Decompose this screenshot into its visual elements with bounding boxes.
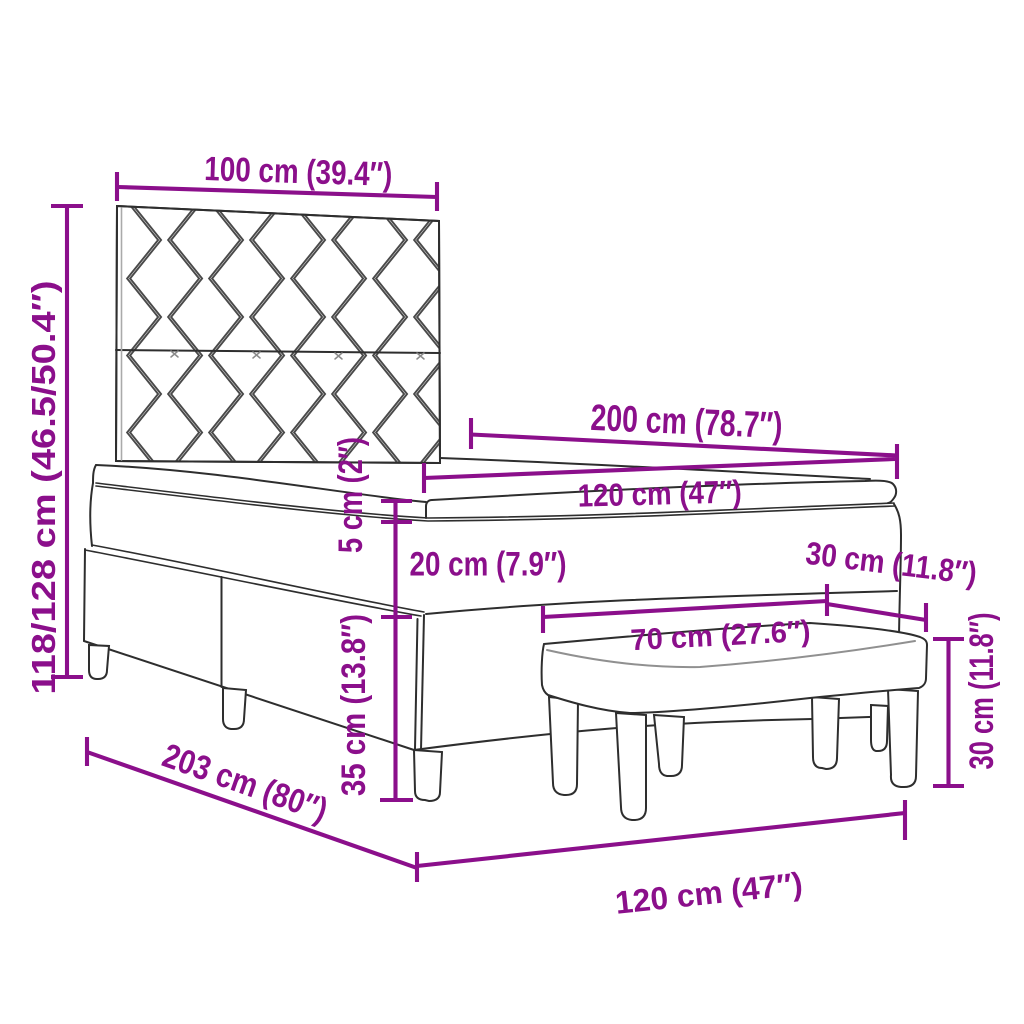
svg-text:120 cm (47″): 120 cm (47″) xyxy=(577,473,742,513)
svg-text:30 cm (11.8″): 30 cm (11.8″) xyxy=(963,613,1001,770)
svg-text:100 cm (39.4″): 100 cm (39.4″) xyxy=(204,150,393,194)
svg-text:35 cm (13.8″): 35 cm (13.8″) xyxy=(335,614,373,796)
svg-text:5 cm (2″): 5 cm (2″) xyxy=(332,437,370,553)
svg-text:118/128 cm (46.5/50.4″): 118/128 cm (46.5/50.4″) xyxy=(25,281,62,695)
svg-text:20 cm (7.9″): 20 cm (7.9″) xyxy=(410,546,567,584)
svg-text:200 cm (78.7″): 200 cm (78.7″) xyxy=(590,397,784,446)
